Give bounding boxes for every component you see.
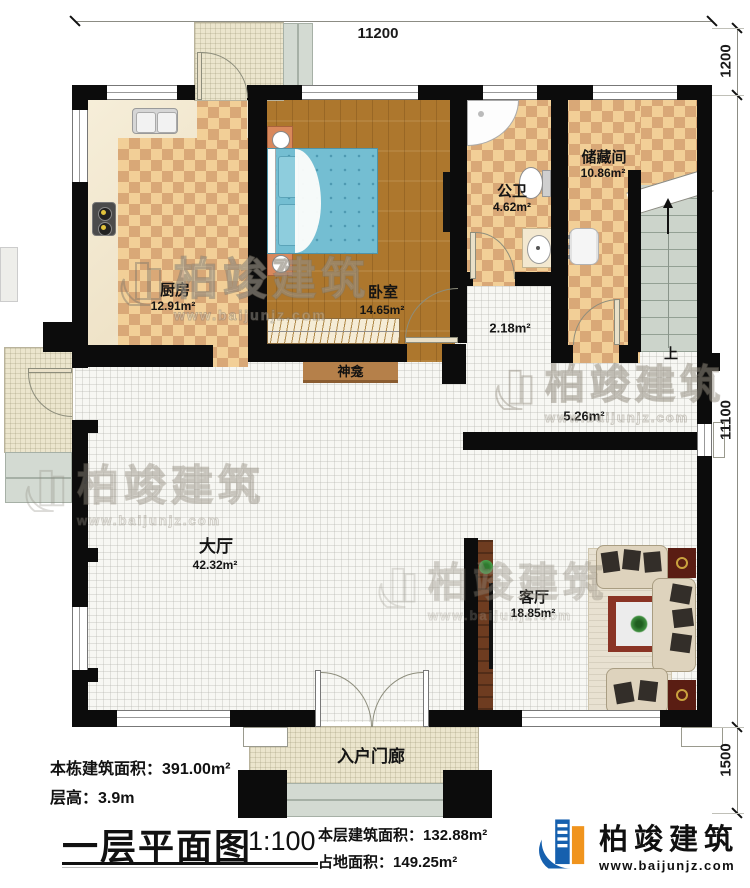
window [72, 110, 88, 182]
wall [427, 710, 522, 727]
wall [464, 538, 478, 712]
window [117, 710, 230, 727]
entry-porch-column [443, 770, 492, 818]
title-underline [62, 862, 318, 865]
dimension-line [737, 28, 738, 813]
dim-right-label: 11100 [718, 400, 735, 440]
kitchen-floor [118, 138, 248, 367]
end-table [668, 548, 696, 578]
shrine: 神龛 [303, 361, 398, 383]
wall [442, 344, 466, 384]
dim-right-bottom-label: 1500 [718, 743, 735, 776]
door-leaf [405, 337, 458, 343]
wall [628, 170, 641, 352]
brand-logo: 柏竣建筑 www.baijunjz.com [537, 815, 739, 873]
window [72, 607, 88, 670]
window-sill [243, 727, 288, 747]
wall [418, 85, 483, 100]
wall [72, 420, 88, 607]
dim-top-label: 11200 [358, 25, 399, 42]
hall-area: 42.32m² [193, 558, 238, 572]
kitchen-area: 12.91m² [151, 299, 196, 313]
sofa-chaise [652, 578, 696, 672]
wall [72, 710, 117, 727]
floor-plan-page: 神龛 [0, 0, 750, 888]
window [107, 85, 177, 100]
bathroom-label: 公卫 [497, 184, 527, 200]
footprint-area: 占地面积：149.25m² [318, 851, 457, 872]
bedroom-label: 卧室 [368, 285, 398, 301]
wall [463, 432, 697, 450]
extension-line [712, 813, 744, 814]
brand-logo-icon [537, 815, 589, 873]
storage-label: 储藏间 [581, 150, 626, 166]
wall [515, 272, 552, 286]
wall [230, 710, 317, 727]
wall-pilaster [697, 353, 720, 371]
side-porch-step [5, 452, 72, 478]
wall [551, 100, 568, 357]
kitchen-sink [132, 108, 178, 134]
toilet [542, 170, 551, 197]
floor-height-label: 层高： [50, 790, 98, 807]
corridor-area: 2.18m² [489, 321, 530, 336]
bathroom-area: 4.62m² [493, 200, 531, 214]
window [483, 85, 537, 100]
wardrobe [267, 318, 400, 344]
brand-name: 柏竣建筑 [599, 816, 739, 858]
kitchen-label: 厨房 [160, 283, 190, 299]
wall [248, 344, 407, 362]
total-building-area: 本栋建筑面积：391.00m² [50, 755, 231, 779]
wall-pilaster [72, 668, 98, 682]
bedroom-area: 14.65m² [360, 303, 405, 317]
wall [537, 85, 593, 100]
extension-line [712, 28, 744, 29]
window [697, 424, 712, 456]
living-tv [489, 583, 493, 669]
wall-pilaster [72, 548, 98, 562]
sofa-seat [606, 668, 668, 714]
hall-label: 大厅 [199, 538, 233, 556]
end-table [668, 680, 696, 710]
floor-height-value: 3.9m [98, 790, 134, 807]
entry-porch-label: 入户门廊 [337, 748, 405, 766]
stairs-up-label: 上 [664, 347, 678, 362]
total-area-value: 391.00m² [162, 761, 231, 778]
window [593, 85, 677, 100]
stove [92, 202, 116, 236]
wall [247, 85, 302, 100]
storage-area: 10.86m² [581, 166, 626, 180]
wall-pilaster [43, 322, 88, 352]
door-leaf [423, 670, 429, 727]
living-label: 客厅 [519, 590, 549, 606]
wall [697, 456, 712, 727]
floor-area: 本层建筑面积：132.88m² [318, 824, 487, 845]
total-area-label: 本栋建筑面积： [50, 761, 162, 778]
wall [248, 100, 267, 362]
side-porch-step [5, 478, 72, 503]
entry-porch-column [238, 770, 287, 818]
wall-pilaster [72, 420, 98, 433]
title-underline-shadow [62, 867, 318, 868]
up-arrow-head-icon [663, 198, 673, 208]
footprint-value: 149.25m² [393, 854, 457, 871]
wall [697, 85, 712, 424]
bathroom-sink-counter [522, 228, 553, 268]
dim-right-top-label: 1200 [718, 44, 735, 77]
wall [87, 345, 213, 367]
exterior-pad [0, 247, 18, 302]
wall [551, 345, 573, 363]
floor-area-value: 132.88m² [423, 827, 487, 844]
stair-hall-area: 5.26m² [563, 409, 604, 424]
extension-line [712, 95, 744, 96]
cabinet-plant [479, 560, 493, 574]
living-area: 18.85m² [511, 606, 556, 620]
dimension-line [75, 21, 712, 22]
plan-scale: 1:100 [248, 826, 316, 857]
floor-area-label: 本层建筑面积： [318, 827, 423, 844]
up-arrow-icon [667, 206, 669, 234]
wall [72, 85, 88, 110]
brand-url: www.baijunjz.com [599, 858, 739, 873]
window [522, 710, 660, 727]
water-heater [569, 228, 599, 265]
wall [177, 85, 195, 100]
bed [267, 148, 378, 254]
window [302, 85, 418, 100]
floor-height: 层高：3.9m [50, 784, 134, 808]
extension-line [712, 727, 744, 728]
footprint-label: 占地面积： [318, 854, 393, 871]
shrine-label: 神龛 [337, 364, 363, 379]
